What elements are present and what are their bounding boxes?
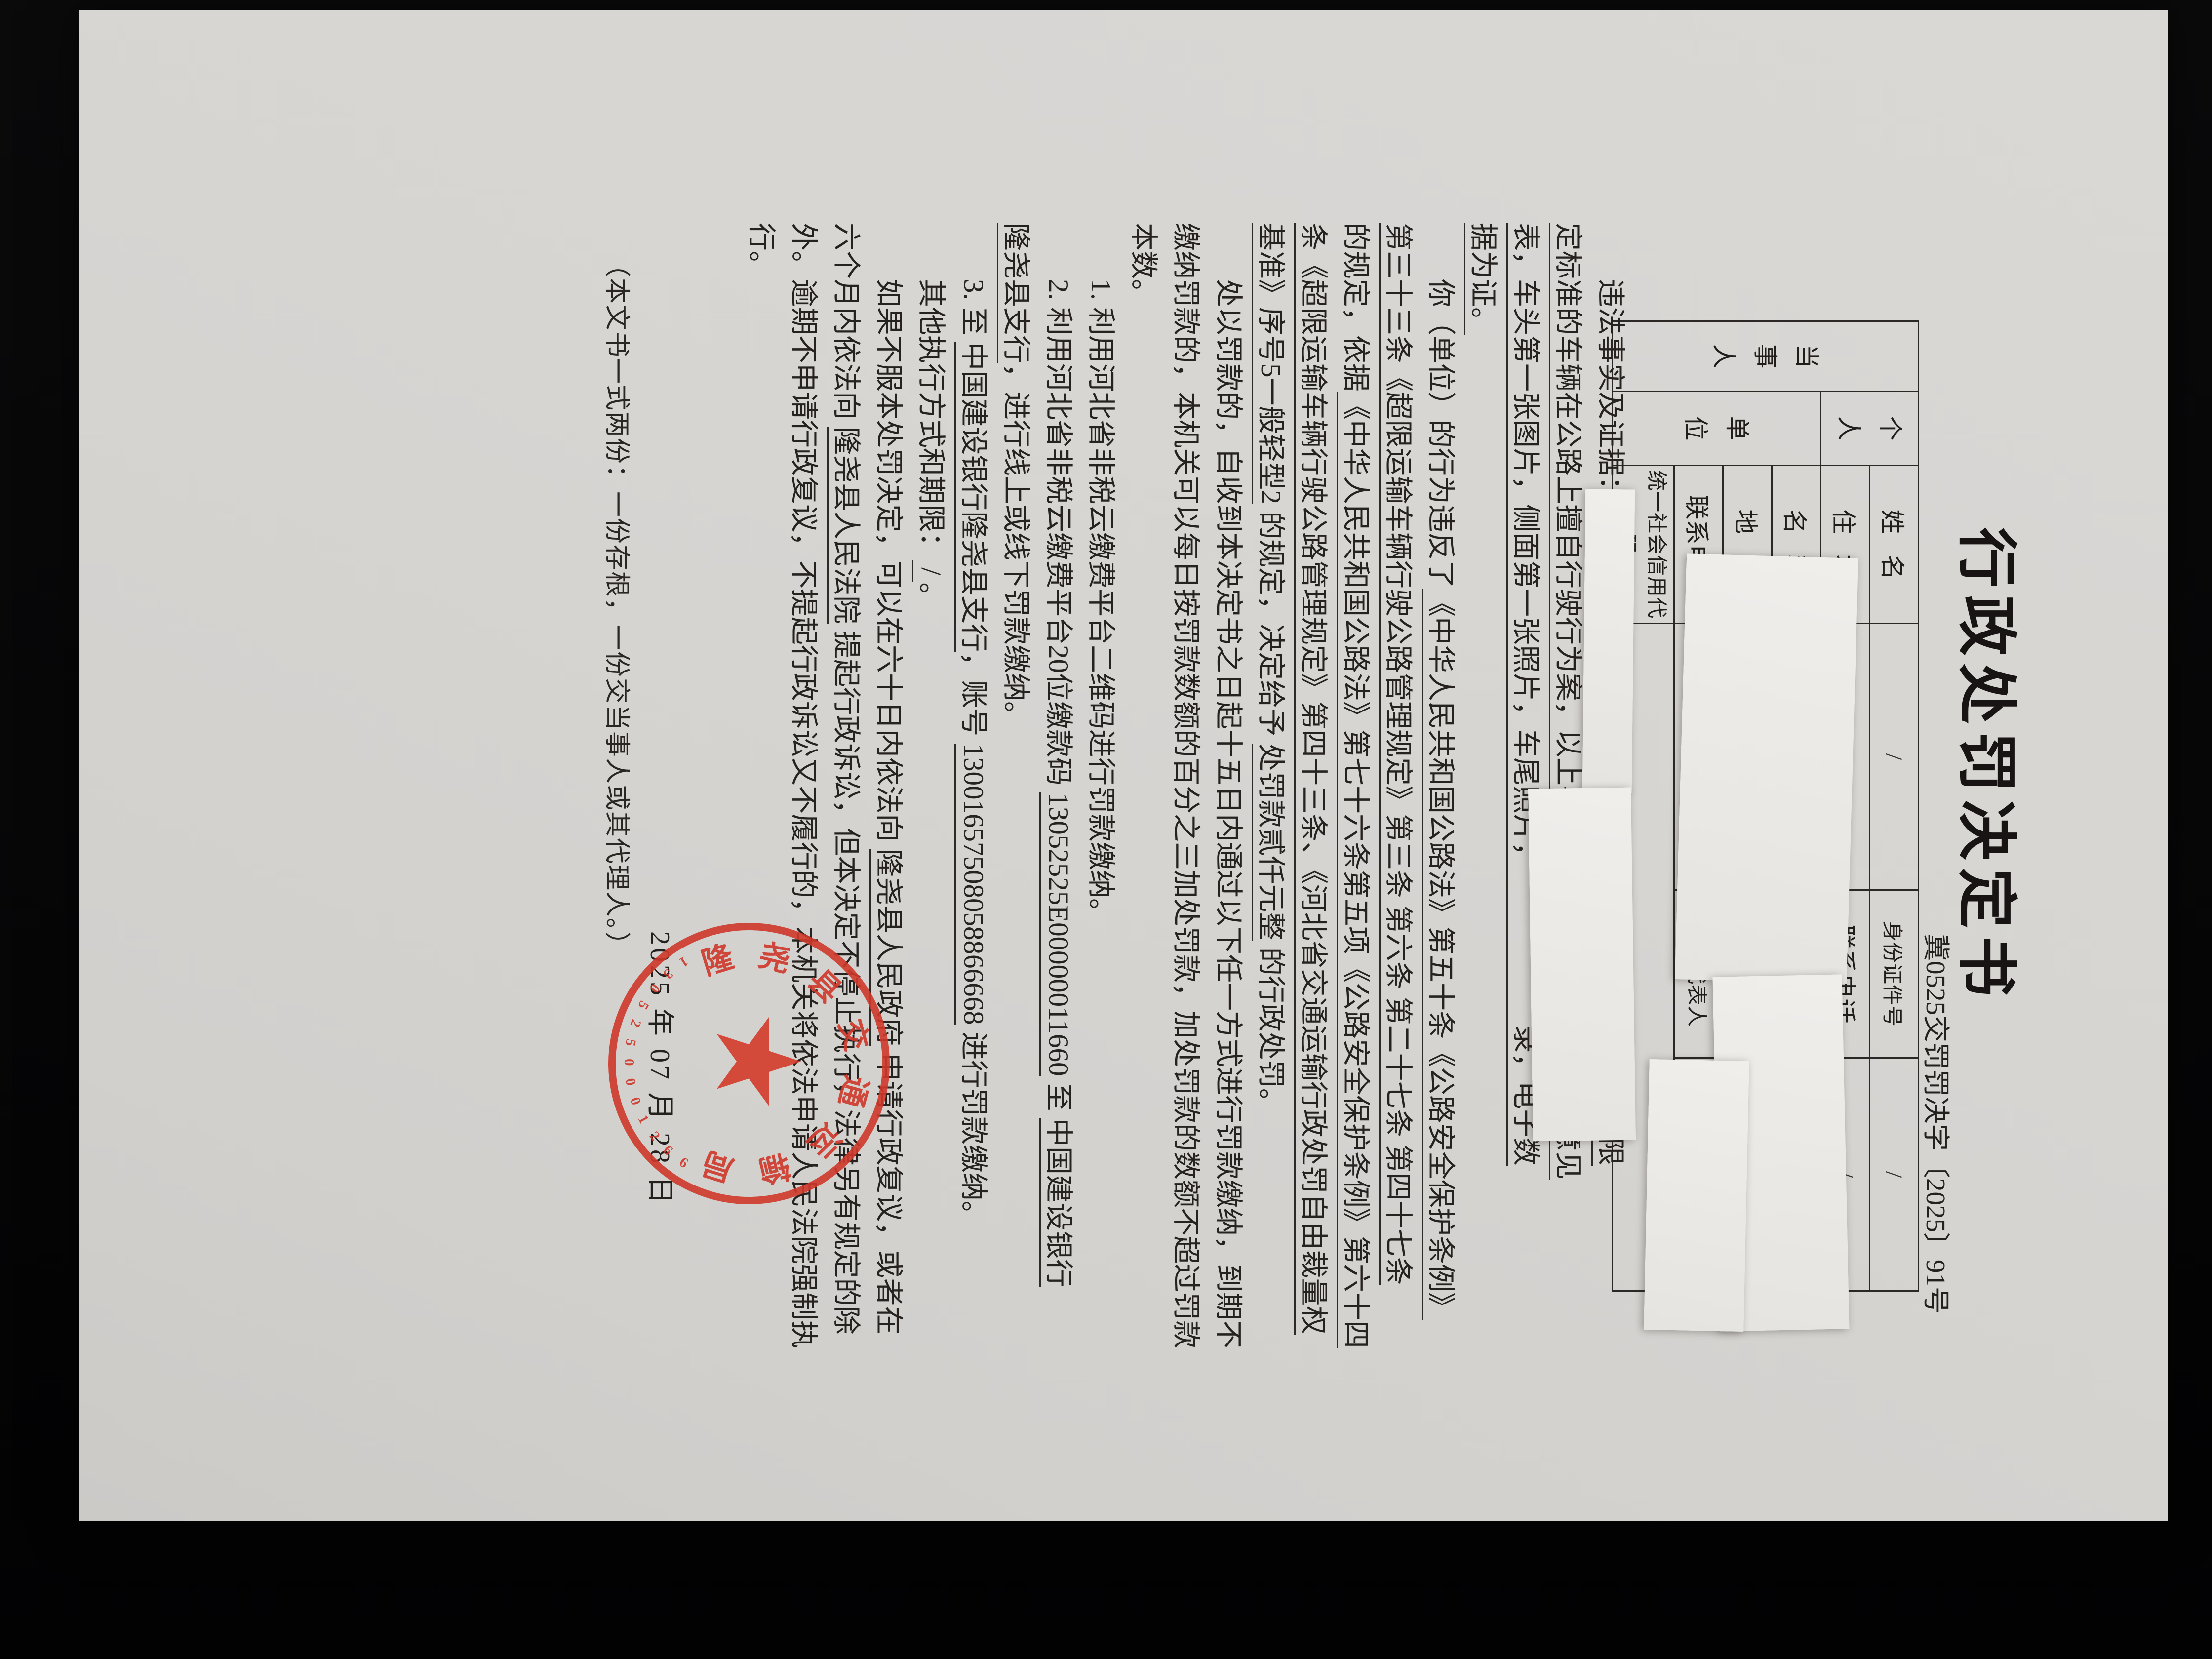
filled-in-text: 13052525E00000011660 [1039,792,1074,1076]
body-line: 其他执行方式和期限： / 。 [909,223,952,1294]
printed-text: 3. 至 [958,279,989,342]
filled-in-text: 13001657508058866668 [954,744,989,1025]
filled-in-text: 据为证。 [1464,223,1499,335]
printed-text: 本数。 [1128,223,1159,307]
redaction-slip [1675,553,1858,984]
official-stamp: ★ 隆尧县交通运输局1305250001266 [608,923,890,1204]
party-label-cell: 当事人 [1613,321,1919,392]
printed-text: 缴纳罚款的，本机关可以每日按罚款数额的百分之三加处罚款，加处罚款的数额不超过罚款 [1170,223,1201,1348]
printed-text: 六个月内依法向 [830,223,862,427]
body-line: 条《超限运输车辆行驶公路管理规定》第四十三条、《河北省交通运输行政处罚自由裁量权 [1292,223,1334,1294]
body-line: 你（单位）的行为违反了《中华人民共和国公路法》第五十条《公路安全保护条例》 [1419,223,1461,1294]
filled-in-text: 隆尧县支行 [997,223,1031,363]
table-row: 当事人 个人 姓名 / 身份证件号 / [1870,321,1919,1291]
body-line: 据为证。 [1461,223,1504,1294]
printed-text: ，进行线上或线下罚款缴纳。 [1000,363,1031,729]
filled-in-text: 第三十三条《超限运输车辆行驶公路管理规定》第三条 第六条 第二十七条 第四十七条 [1379,223,1414,1285]
body-line: 处以罚款的，自收到本决定书之日起十五日内通过以下任一方式进行罚款缴纳，到期不 [1207,223,1249,1294]
body-line: 第三十三条《超限运输车辆行驶公路管理规定》第三条 第六条 第二十七条 第四十七条 [1377,223,1419,1294]
name-value: / [1870,624,1919,890]
body-line: 2. 利用河北省非税云缴费平台20位缴款码 13052525E000000116… [1037,223,1079,1294]
body-line: 本数。 [1122,223,1164,1294]
printed-text: 至 [1043,1076,1074,1118]
document-number: 冀0525交罚罚决字〔2025〕91号 [1919,10,1958,1521]
body-line: 基准》序号5一般轻型2 的规定，决定给予 处罚款贰仟元整 的行政处罚。 [1249,223,1292,1294]
printed-text: ，账号 [958,652,989,743]
printed-text: 你（单位）的行为违反了 [1425,279,1456,589]
filled-in-text: 处罚款贰仟元整 [1252,744,1286,941]
body-line: 1. 利用河北省非税云缴费平台二维码进行罚款缴纳。 [1079,223,1122,1294]
filled-in-text: / [912,560,947,582]
filled-in-text: 《中华人民共和国公路法》第七十六条第五项《公路安全保护条例》第六十四 [1337,392,1371,1348]
person-label-cell: 个人 [1821,392,1919,466]
filled-in-text: 中国建设银行隆尧县支行 [954,342,989,652]
filled-in-text: 《中华人民共和国公路法》第五十条《公路安全保护条例》 [1422,589,1456,1320]
body-line: 的规定，依据《中华人民共和国公路法》第七十六条第五项《公路安全保护条例》第六十四 [1334,223,1377,1294]
printed-text: 的规定，决定给予 [1255,504,1286,744]
photo-background: 行政处罚决定书 冀0525交罚罚决字〔2025〕91号 当事人 个人 姓名 / … [0,0,2212,1659]
filled-in-text: 条《超限运输车辆行驶公路管理规定》第四十三条、《河北省交通运输行政处罚自由裁量权 [1294,223,1329,1335]
body-line: 3. 至 中国建设银行隆尧县支行，账号 13001657508058866668… [952,223,994,1294]
printed-text: 处以罚款的，自收到本决定书之日起十五日内通过以下任一方式进行罚款缴纳，到期不 [1213,279,1244,1348]
stamp-star-icon: ★ [698,1009,814,1113]
redaction-slip [1528,788,1636,1142]
printed-text: 的行政处罚。 [1255,941,1286,1116]
footer-note: （本文书一式两份：一份存根，一份交当事人或其代理人。） [601,251,638,958]
filled-in-text: 基准》序号5一般轻型2 [1252,223,1286,504]
document-title: 行政处罚决定书 [1948,10,2035,1521]
printed-text: 违法事实及证据： [1595,279,1626,490]
printed-text: 2. 利用河北省非税云缴费平台20位缴款码 [1043,279,1074,792]
filled-in-text: 中国建设银行 [1039,1118,1074,1287]
printed-text: 。 [915,582,947,610]
redaction-slip [1644,1059,1749,1332]
name-label: 姓名 [1870,466,1919,624]
id-number-label: 身份证件号 [1870,890,1919,1058]
filled-in-text: 隆尧县人民法院 [827,427,862,624]
printed-text: 行。 [746,223,777,279]
body-line: 缴纳罚款的，本机关可以每日按罚款数额的百分之三加处罚款，加处罚款的数额不超过罚款 [1164,223,1207,1294]
printed-text: 其他执行方式和期限： [915,279,947,560]
id-number-value: / [1870,1058,1919,1291]
printed-text: 如果不服本处罚决定，可以在六十日内依法向 [873,279,904,849]
printed-text: 进行罚款缴纳。 [958,1025,989,1229]
stamp-serial-digit: 0 [622,1059,636,1066]
unit-label-cell: 单位 [1613,392,1821,466]
printed-text: 的规定，依据 [1340,223,1371,392]
printed-text: 1. 利用河北省非税云缴费平台二维码进行罚款缴纳。 [1085,279,1116,926]
redaction-slip [1582,489,1635,793]
body-line: 隆尧县支行，进行线上或线下罚款缴纳。 [994,223,1037,1294]
document-paper: 行政处罚决定书 冀0525交罚罚决字〔2025〕91号 当事人 个人 姓名 / … [79,10,2168,1521]
